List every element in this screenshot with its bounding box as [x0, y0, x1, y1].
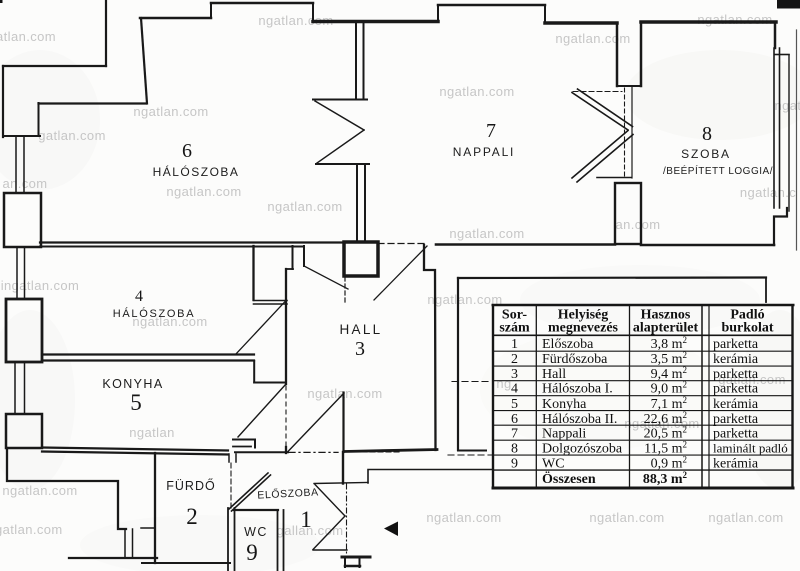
svg-text:ngatlan.com: ngatlan.com: [133, 104, 208, 119]
svg-text:Fürdőszoba: Fürdőszoba: [542, 352, 608, 367]
svg-text:ngatlan: ngatlan: [129, 425, 174, 440]
svg-text:ngatlan.com: ngatlan.com: [697, 12, 772, 27]
svg-text:1: 1: [511, 337, 518, 352]
svg-text:ngatlan.com: ngatlan.com: [427, 292, 502, 307]
svg-text:SZOBA: SZOBA: [681, 147, 731, 161]
svg-text:kerámia: kerámia: [713, 457, 759, 472]
svg-text:7: 7: [511, 427, 518, 442]
svg-text:Összesen: Összesen: [542, 470, 596, 487]
svg-text:ngatlan.com: ngatlan.com: [267, 199, 342, 214]
svg-text:ngatlan.com: ngatlan.com: [0, 522, 63, 537]
svg-text:HALL: HALL: [340, 322, 383, 337]
svg-text:ngatlan.com: ngatlan.com: [555, 31, 630, 46]
svg-text:4: 4: [511, 382, 518, 397]
svg-text:szám: szám: [499, 321, 530, 336]
svg-text:kerámia: kerámia: [713, 397, 759, 412]
svg-text:5: 5: [130, 390, 142, 415]
svg-text:parketta: parketta: [713, 367, 759, 382]
svg-text:parketta: parketta: [713, 427, 759, 442]
svg-text:5: 5: [511, 397, 518, 412]
svg-text:6: 6: [511, 412, 518, 427]
svg-text:ngatlan.com: ngatlan.com: [439, 84, 514, 99]
svg-text:20,5 m2: 20,5 m2: [644, 425, 687, 442]
svg-text:NAPPALI: NAPPALI: [453, 145, 515, 159]
svg-text:Dolgozószoba: Dolgozószoba: [542, 442, 623, 457]
svg-text:FÜRDŐ: FÜRDŐ: [166, 478, 215, 493]
svg-text:3: 3: [355, 338, 365, 360]
svg-text:WC: WC: [244, 525, 268, 539]
svg-text:ngatlan.com: ngatlan.com: [166, 184, 241, 199]
svg-text:2: 2: [511, 352, 518, 367]
svg-text:7: 7: [486, 120, 496, 142]
svg-text:8: 8: [511, 442, 518, 457]
svg-text:kerámia: kerámia: [713, 352, 759, 367]
svg-text:an.com: an.com: [2, 176, 47, 191]
svg-text:1: 1: [300, 507, 312, 532]
svg-text:ngatlan.com: ngatlan.com: [426, 510, 501, 525]
svg-text:ngatlan.c: ngatlan.c: [740, 185, 796, 200]
svg-text:9: 9: [246, 540, 258, 565]
svg-text:gatlan.com: gatlan.com: [38, 128, 106, 143]
svg-text:parketta: parketta: [713, 412, 759, 427]
svg-text:6: 6: [182, 140, 192, 162]
svg-text:Előszoba: Előszoba: [542, 337, 594, 352]
svg-text:HÁLÓSZOBA: HÁLÓSZOBA: [113, 307, 196, 320]
svg-text:8: 8: [702, 123, 712, 145]
svg-text:/BEÉPÍTETT LOGGIA/: /BEÉPÍTETT LOGGIA/: [663, 164, 773, 177]
svg-text:ELŐSZOBA: ELŐSZOBA: [257, 484, 319, 501]
svg-text:9,0 m2: 9,0 m2: [651, 380, 687, 397]
svg-text:Hálószoba II.: Hálószoba II.: [542, 412, 617, 427]
svg-text:Hall: Hall: [542, 367, 566, 382]
svg-text:Hálószoba I.: Hálószoba I.: [542, 382, 613, 397]
svg-text:parketta: parketta: [713, 337, 759, 352]
svg-text:atlan.com: atlan.com: [0, 29, 56, 44]
svg-text:9: 9: [511, 457, 518, 472]
svg-text:an.com: an.com: [615, 217, 660, 232]
svg-text:Konyha: Konyha: [542, 397, 587, 412]
svg-text:3: 3: [511, 367, 518, 382]
svg-text:WC: WC: [542, 457, 565, 472]
svg-text:ngatlan.com: ngatlan.com: [449, 226, 524, 241]
svg-text:88,3 m2: 88,3 m2: [643, 470, 688, 487]
svg-text:ngatlan.com: ngatlan.com: [589, 510, 664, 525]
svg-text:laminált padló: laminált padló: [713, 441, 788, 456]
svg-text:megnevezés: megnevezés: [548, 321, 619, 336]
svg-text:ngatlan.com: ngatlan.com: [307, 386, 382, 401]
svg-text:ingatlan.com: ingatlan.com: [1, 278, 80, 293]
svg-text:burkolat: burkolat: [721, 321, 773, 336]
svg-text:4: 4: [135, 288, 143, 305]
svg-text:Nappali: Nappali: [542, 427, 586, 442]
svg-text:ngatlan.com: ngatlan.com: [708, 510, 783, 525]
svg-text:KONYHA: KONYHA: [102, 377, 163, 391]
svg-text:ngatlan.com: ngatlan.com: [2, 483, 77, 498]
svg-text:HÁLÓSZOBA: HÁLÓSZOBA: [153, 164, 240, 179]
svg-text:ng: ng: [496, 376, 511, 391]
svg-text:0,9 m2: 0,9 m2: [651, 455, 687, 472]
svg-text:22,6 m2: 22,6 m2: [644, 410, 687, 427]
svg-text:11,5 m2: 11,5 m2: [644, 440, 687, 457]
svg-text:parketta: parketta: [713, 382, 759, 397]
svg-text:2: 2: [186, 504, 198, 529]
svg-text:alapterület: alapterület: [633, 321, 699, 336]
